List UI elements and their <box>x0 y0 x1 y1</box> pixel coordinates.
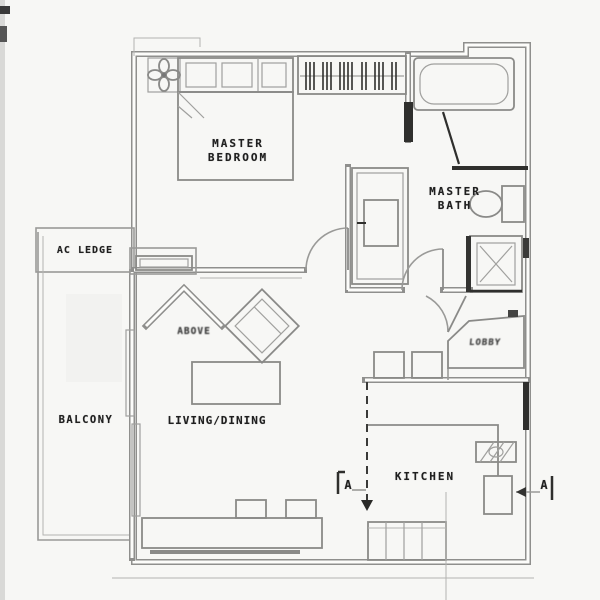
kitchen-label: KITCHEN <box>384 470 466 483</box>
lobby-label: LOBBY <box>454 338 515 348</box>
balcony-label: BALCONY <box>36 414 136 426</box>
master-bedroom-label-line1: MASTER <box>212 137 264 150</box>
master-bedroom-label: MASTERBEDROOM <box>163 137 313 165</box>
master-bath-label-line1: MASTER <box>429 185 481 198</box>
living-dining-label: LIVING/DINING <box>133 414 301 427</box>
ledge-note-label: ABOVE <box>163 326 225 337</box>
master-bath-label-line2: BATH <box>438 199 473 212</box>
master-bedroom-label-line2: BEDROOM <box>208 151 268 164</box>
scan-artifacts <box>0 0 600 600</box>
section-marker-left-label: A <box>341 478 355 492</box>
master-bath-label: MASTERBATH <box>405 185 505 213</box>
wall-fill <box>404 102 413 142</box>
section-marker-right-label: A <box>537 478 551 492</box>
floor-plan-drawing <box>0 0 600 600</box>
floor-plan: AC LEDGE MASTERBEDROOM MASTERBATH ABOVE … <box>0 0 600 600</box>
ac-ledge-label: AC LEDGE <box>36 245 134 256</box>
